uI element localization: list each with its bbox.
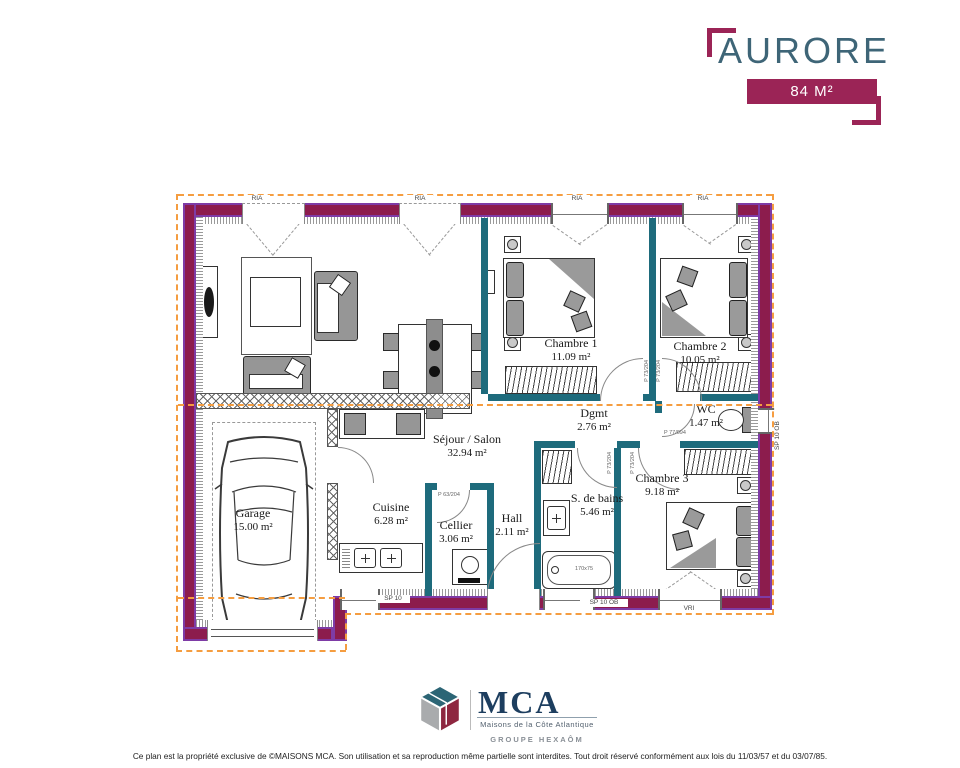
wall-garage-east-upper	[327, 409, 338, 447]
room-name: Chambre 2	[650, 339, 750, 354]
door-swing-line	[400, 220, 430, 256]
room-area: 2.76 m²	[554, 421, 634, 435]
garage-door-panel	[211, 629, 314, 637]
door-arc-garage-cuisine	[338, 447, 374, 483]
room-name: Garage	[213, 506, 293, 521]
garage-door-opening	[207, 620, 318, 641]
roof-line-garage-right	[345, 613, 347, 650]
room-name: Hall	[472, 511, 552, 526]
door-swing-line	[243, 220, 273, 256]
wall-cellier-north-a	[425, 483, 437, 490]
room-label-garage: Garage 15.00 m²	[213, 506, 293, 535]
door-ref-chambre1: P 73/204	[644, 360, 650, 382]
sink-drainer	[342, 548, 350, 568]
wall-chambre1-dgmt-b	[643, 394, 656, 401]
window-swing-line	[552, 225, 580, 245]
room-label-chambre1: Chambre 1 11.09 m²	[521, 336, 621, 365]
wall-garage-east-lower	[327, 483, 338, 560]
bathtub-tap	[551, 566, 559, 574]
plant	[204, 287, 214, 317]
window-cuisine	[340, 589, 380, 610]
door-swing-line	[273, 219, 303, 255]
label-sp10ob-east: SP 10 OB	[774, 398, 781, 450]
room-area: 5.46 m²	[547, 506, 647, 520]
window-swing-line	[683, 225, 711, 245]
label-ria-3: RIA	[564, 195, 590, 203]
label-vri: VRI	[674, 605, 704, 613]
label-ria-1: RIA	[244, 195, 270, 203]
room-area: 32.94 m²	[407, 447, 527, 461]
washer-controls	[458, 578, 480, 583]
logo-divider	[470, 690, 471, 730]
logo-tagline: Maisons de la Côte Atlantique	[477, 717, 597, 729]
nightstand	[504, 236, 521, 253]
logo-group: GROUPE HEXAÔM	[482, 735, 592, 744]
wall-garage-kitchen-north	[196, 393, 470, 409]
insulation-west	[196, 217, 203, 620]
wall-west	[183, 203, 196, 640]
sink-basin	[380, 548, 402, 568]
window-chambre1	[551, 203, 609, 224]
table-bowl	[429, 366, 440, 377]
insulation-east	[751, 217, 758, 589]
wardrobe-chambre1	[505, 366, 597, 394]
room-name: Cuisine	[351, 500, 431, 515]
entry-door-opening	[487, 589, 540, 610]
washer-drum	[461, 556, 479, 574]
label-ria-4: RIA	[690, 195, 716, 203]
room-label-bains: S. de bains 5.46 m²	[547, 491, 647, 520]
legal-notice: Ce plan est la propriété exclusive de ©M…	[0, 751, 960, 761]
chair	[383, 333, 399, 351]
plan-title: AURORE	[718, 30, 878, 72]
wall-east	[758, 203, 772, 610]
window-swing-line	[579, 224, 607, 244]
pillow	[506, 262, 524, 298]
table-bowl	[429, 340, 440, 351]
room-area: 11.09 m²	[521, 351, 621, 365]
door-ref-chambre2: P 73/204	[656, 360, 662, 382]
pillow	[506, 300, 524, 336]
french-door-sejour-1	[242, 203, 305, 224]
bathroom-shelf	[542, 450, 572, 484]
roof-line-left	[176, 194, 178, 652]
wall-chambre2-wc	[700, 394, 758, 401]
wall-dgmt-bains-b	[617, 441, 640, 448]
label-sp10: SP 10	[376, 595, 410, 603]
room-name: Chambre 3	[612, 471, 712, 486]
wall-chambre1-dgmt-a	[488, 394, 600, 401]
door-ref-bains: P 73/204	[607, 452, 613, 474]
french-door-sejour-2	[399, 203, 461, 224]
room-label-chambre2: Chambre 2 10.05 m²	[650, 339, 750, 368]
wall-sejour-chambre1	[481, 218, 488, 394]
chair	[383, 371, 399, 389]
door-ref-chambre3: P 73/204	[630, 452, 636, 474]
pillow	[729, 300, 747, 336]
sink-basin	[354, 548, 376, 568]
room-label-dgmt: Dgmt 2.76 m²	[554, 406, 634, 435]
bathtub-size-label: 170x75	[575, 566, 593, 572]
window-chambre2	[682, 203, 738, 224]
room-label-sejour: Séjour / Salon 32.94 m²	[407, 432, 527, 461]
roof-line-bottom-right	[345, 613, 772, 615]
kitchen-appliance	[344, 413, 366, 435]
room-area: 15.00 m²	[213, 521, 293, 535]
pillow	[729, 262, 747, 298]
room-label-hall: Hall 2.11 m²	[472, 511, 552, 540]
door-ref-wc: P 77/094	[664, 430, 686, 436]
roof-line-rear-garage	[178, 597, 345, 599]
title-bracket-bottom-right	[852, 96, 881, 125]
room-area: 2.11 m²	[472, 526, 552, 540]
wall-dgmt-bains-a	[534, 441, 575, 448]
roof-ridge-line	[178, 404, 772, 406]
room-area: 10.05 m²	[650, 354, 750, 368]
label-sp10ob-south: SP 10 OB	[580, 599, 628, 607]
room-name: Séjour / Salon	[407, 432, 527, 447]
logo-text: MCA	[478, 684, 560, 721]
floor-plan-page: AURORE 84 M²	[0, 0, 960, 768]
label-ria-2: RIA	[407, 195, 433, 203]
room-name: S. de bains	[547, 491, 647, 506]
mca-cube-logo-icon	[418, 686, 462, 734]
room-name: Dgmt	[554, 406, 634, 421]
room-label-wc: WC 1.47 m²	[666, 402, 746, 431]
door-swing-line	[429, 219, 459, 255]
coffee-table	[250, 277, 301, 327]
door-ref-cellier: P 63/204	[438, 492, 460, 498]
wall-dgmt-wc	[655, 401, 662, 413]
wall-wc-chambre3	[680, 441, 758, 448]
room-area: 1.47 m²	[666, 417, 746, 431]
roof-line-garage-bottom	[176, 650, 346, 652]
room-name: Chambre 1	[521, 336, 621, 351]
window-swing-line	[708, 224, 736, 244]
